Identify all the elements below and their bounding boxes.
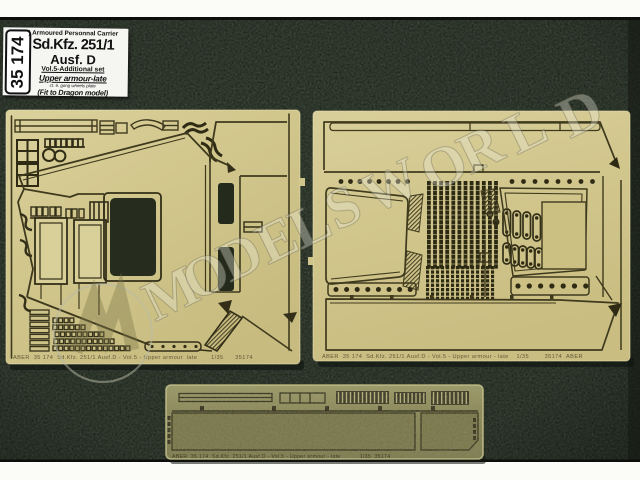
- svg-text:ABER 35 174 Sd.Kfz. 251/1 Au: ABER 35 174 Sd.Kfz. 251/1 Ausf.D - Vol.5…: [172, 454, 390, 460]
- svg-text:ABER 35 174 Sd.Kfz. 251/1 Au: ABER 35 174 Sd.Kfz. 251/1 Ausf.D - Vol.5…: [13, 355, 253, 361]
- svg-text:ABER 35 174 Sd.Kfz. 251/1 Au: ABER 35 174 Sd.Kfz. 251/1 Ausf.D - Vol.5…: [322, 354, 583, 360]
